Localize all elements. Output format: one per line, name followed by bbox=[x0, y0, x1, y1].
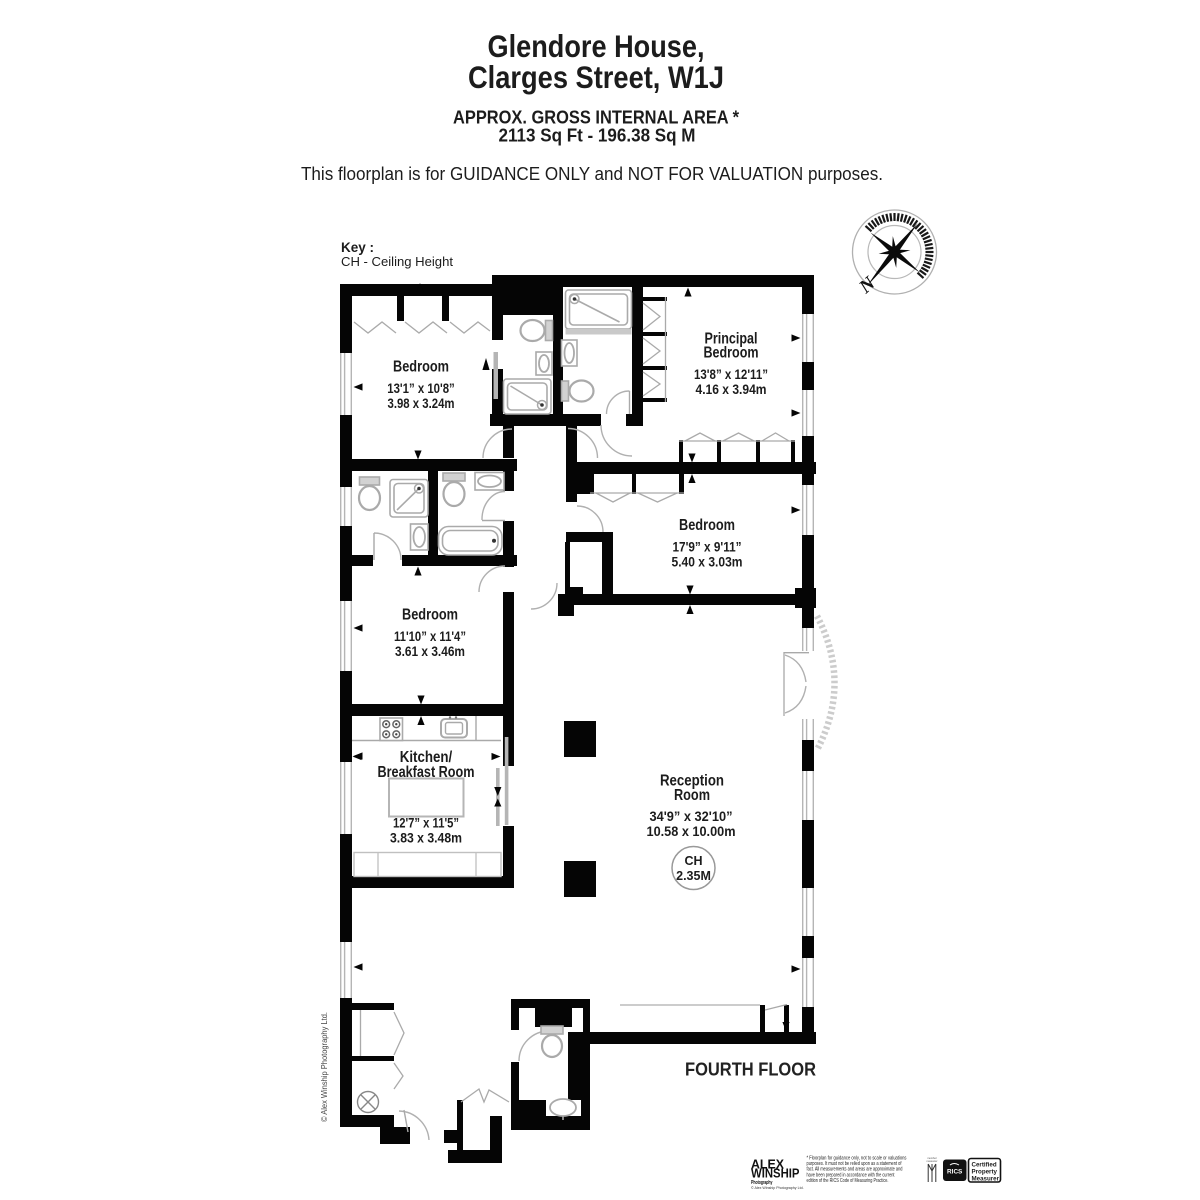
svg-text:Room: Room bbox=[674, 787, 710, 804]
svg-text:Measurer: Measurer bbox=[972, 1176, 1000, 1183]
svg-text:Bedroom: Bedroom bbox=[393, 359, 449, 376]
svg-text:APPROX. GROSS INTERNAL AREA *: APPROX. GROSS INTERNAL AREA * bbox=[453, 108, 740, 128]
svg-text:Property: Property bbox=[972, 1169, 998, 1176]
svg-text:3.61 x 3.46m: 3.61 x 3.46m bbox=[395, 643, 465, 659]
svg-text:5.40 x 3.03m: 5.40 x 3.03m bbox=[672, 554, 743, 570]
svg-text:CH - Ceiling Height: CH - Ceiling Height bbox=[341, 254, 453, 269]
svg-text:Breakfast Room: Breakfast Room bbox=[378, 764, 475, 781]
svg-text:3.98 x 3.24m: 3.98 x 3.24m bbox=[388, 395, 455, 411]
svg-text:© Alex Winship Photography Ltd: © Alex Winship Photography Ltd. bbox=[319, 1012, 329, 1122]
svg-text:CH: CH bbox=[684, 854, 702, 868]
svg-text:17'9” x 9'11”: 17'9” x 9'11” bbox=[673, 539, 742, 555]
svg-text:13'8” x 12'11”: 13'8” x 12'11” bbox=[694, 366, 768, 382]
svg-text:2113 Sq Ft - 196.38 Sq M: 2113 Sq Ft - 196.38 Sq M bbox=[499, 126, 696, 146]
svg-text:edition of the RICS Code of Me: edition of the RICS Code of Measuring Pr… bbox=[807, 1178, 889, 1184]
svg-text:12'7” x 11'5”: 12'7” x 11'5” bbox=[393, 815, 459, 831]
svg-text:© Alex Winship Photography Ltd: © Alex Winship Photography Ltd. bbox=[751, 1186, 804, 1190]
svg-text:3.83 x 3.48m: 3.83 x 3.48m bbox=[390, 830, 462, 846]
svg-text:Clarges Street, W1J: Clarges Street, W1J bbox=[468, 59, 724, 95]
svg-text:2.35M: 2.35M bbox=[676, 869, 711, 883]
svg-text:Key :: Key : bbox=[341, 240, 374, 255]
svg-text:10.58 x 10.00m: 10.58 x 10.00m bbox=[647, 823, 736, 839]
svg-text:Certified: Certified bbox=[972, 1162, 997, 1169]
svg-text:13'1” x 10'8”: 13'1” x 10'8” bbox=[387, 380, 455, 396]
svg-text:Bedroom: Bedroom bbox=[704, 345, 759, 362]
svg-text:WINSHIP: WINSHIP bbox=[751, 1166, 800, 1181]
svg-text:Bedroom: Bedroom bbox=[679, 517, 735, 534]
svg-text:4.16 x 3.94m: 4.16 x 3.94m bbox=[696, 381, 767, 397]
svg-text:Bedroom: Bedroom bbox=[402, 607, 458, 624]
svg-text:measurer: measurer bbox=[927, 1159, 938, 1163]
svg-text:34'9” x 32'10”: 34'9” x 32'10” bbox=[650, 808, 733, 824]
svg-text:RICS: RICS bbox=[947, 1169, 963, 1176]
svg-text:11'10” x 11'4”: 11'10” x 11'4” bbox=[394, 628, 466, 644]
svg-text:This floorplan is for GUIDANCE: This floorplan is for GUIDANCE ONLY and … bbox=[301, 164, 883, 184]
svg-text:FOURTH FLOOR: FOURTH FLOOR bbox=[685, 1060, 816, 1080]
